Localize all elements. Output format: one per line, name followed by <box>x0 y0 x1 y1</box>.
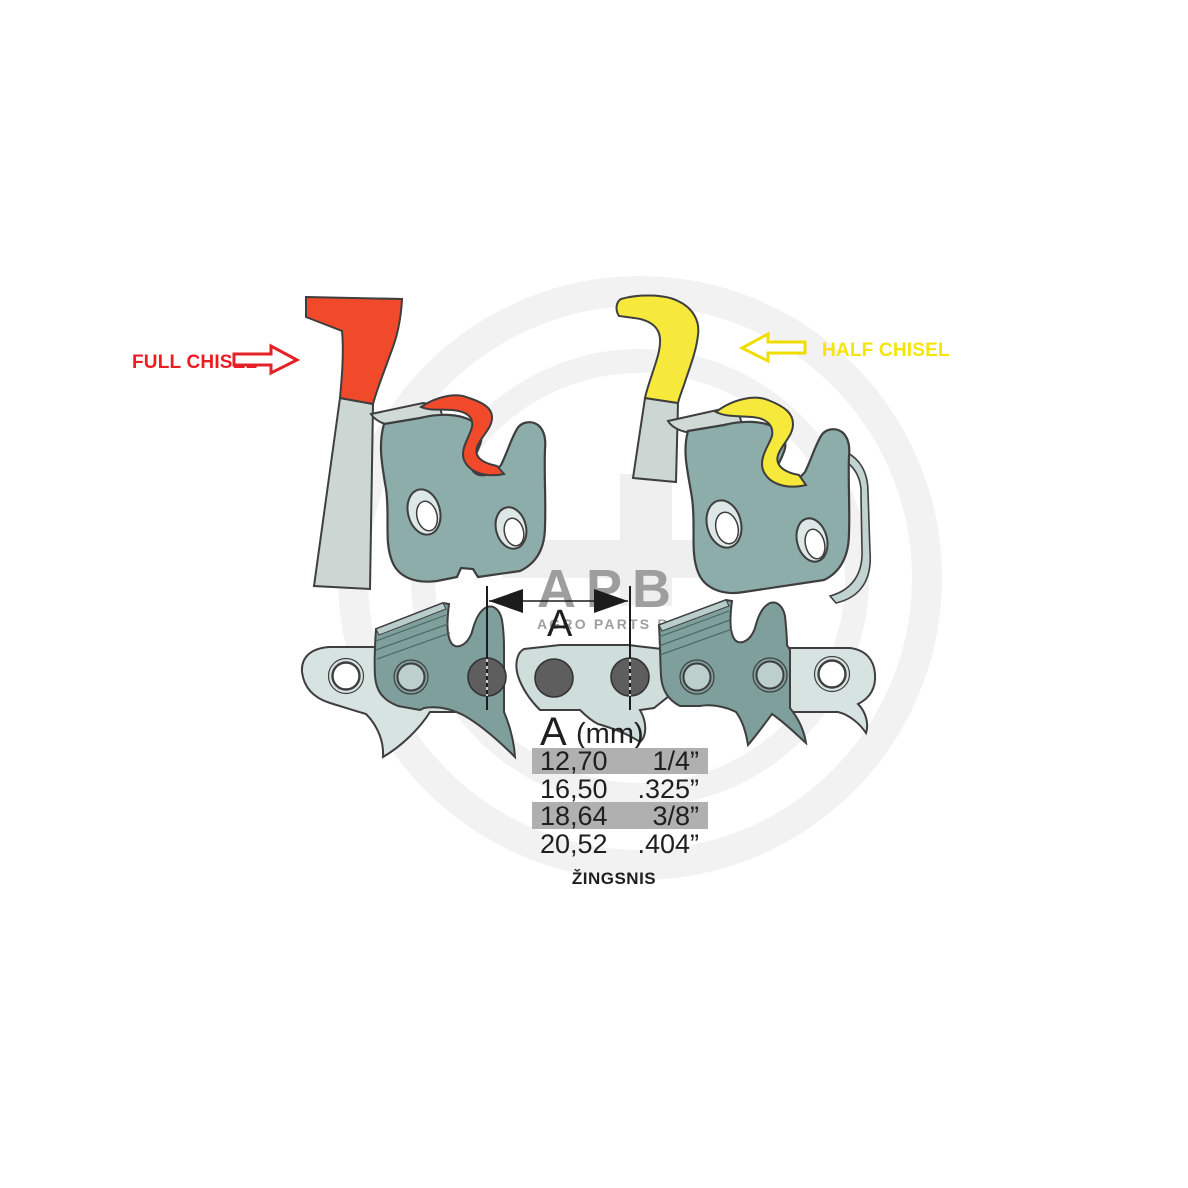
half-chisel-cutter-3d <box>668 398 870 603</box>
half-chisel-profile-shank <box>633 398 678 482</box>
pitch-inch-value: .325” <box>637 774 699 804</box>
chain-right-cutter-hole-front <box>757 662 784 689</box>
pitch-mm-value: 18,64 <box>540 801 608 831</box>
chain-left-strap-hole <box>333 663 360 690</box>
pitch-mm-value: 12,70 <box>540 746 608 776</box>
pitch-inch-value: 3/8” <box>652 801 699 831</box>
chain-right-strap-hole <box>819 661 846 688</box>
full-chisel-profile-shank <box>314 398 373 589</box>
full-chisel-cutter-3d <box>371 395 545 581</box>
full-chisel-callout: FULL CHISEL <box>132 346 297 373</box>
dimension-letter: A <box>547 603 573 645</box>
pitch-inch-value: .404” <box>637 829 699 859</box>
half-chisel-profile-blade <box>617 295 699 403</box>
half-chisel-label: HALF CHISEL <box>822 340 950 361</box>
chain-rivet-center <box>535 659 573 697</box>
full-chisel-profile-blade <box>306 297 402 404</box>
diagram-canvas: APB AGRO PARTS BALTIJA FULL CHISEL HALF … <box>0 0 1188 1188</box>
full-chisel-cutter-body <box>381 415 545 582</box>
pitch-mm-value: 16,50 <box>540 774 608 804</box>
pitch-inch-value: 1/4” <box>652 746 699 776</box>
chain-right-cutter-hole-rear <box>684 664 711 691</box>
pitch-table-caption: ŽINGSNIS <box>572 869 656 888</box>
chain-left-cutter-hole <box>398 664 425 691</box>
pitch-mm-value: 20,52 <box>540 829 608 859</box>
